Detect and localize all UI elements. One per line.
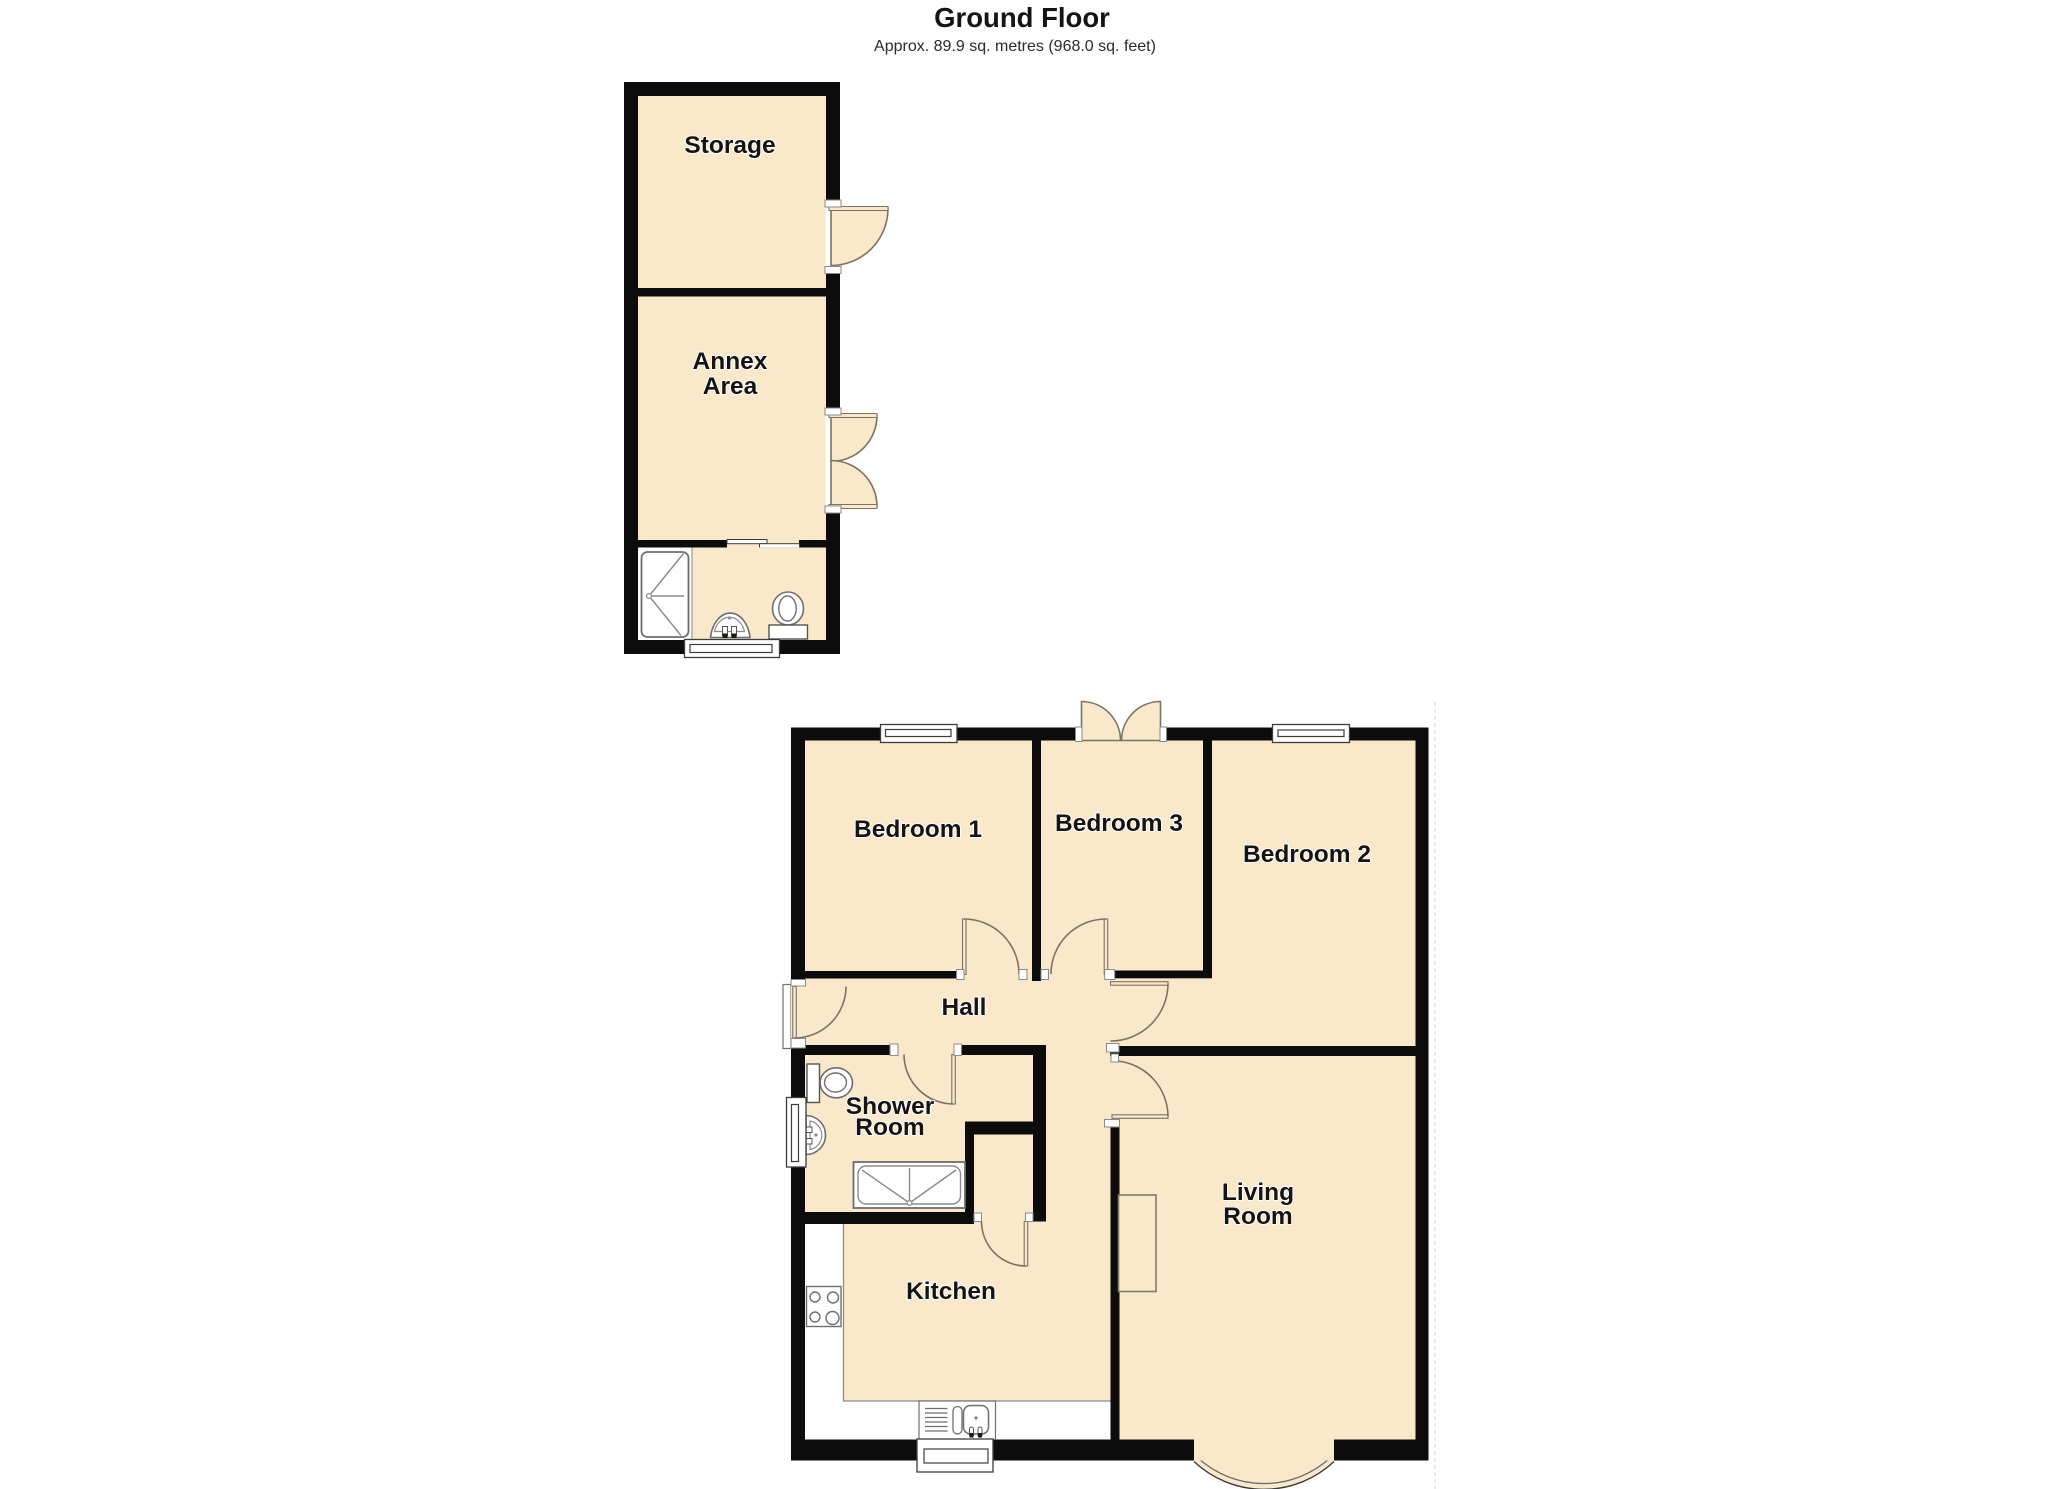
svg-text:Annex: Annex (693, 348, 768, 375)
svg-text:Bedroom 1: Bedroom 1 (854, 816, 982, 843)
svg-text:Room: Room (1223, 1203, 1292, 1230)
svg-text:Approx. 89.9 sq. metres (968.0: Approx. 89.9 sq. metres (968.0 sq. feet) (874, 38, 1156, 55)
svg-text:Bedroom 2: Bedroom 2 (1243, 841, 1371, 868)
svg-text:Living: Living (1222, 1179, 1294, 1206)
svg-text:Hall: Hall (942, 994, 987, 1021)
svg-text:Kitchen: Kitchen (906, 1278, 996, 1305)
svg-text:Bedroom 3: Bedroom 3 (1055, 810, 1183, 837)
svg-text:Storage: Storage (684, 132, 775, 159)
svg-text:Ground Floor: Ground Floor (934, 2, 1110, 33)
svg-text:Area: Area (703, 373, 758, 400)
svg-text:Room: Room (855, 1114, 924, 1141)
